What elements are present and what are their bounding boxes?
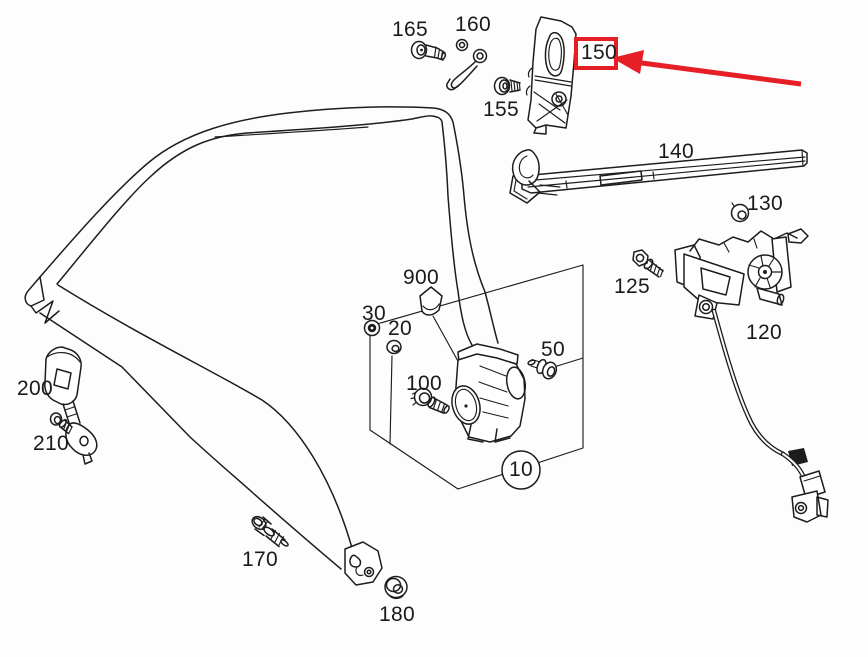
callout-200[interactable]: 200 [17,378,53,400]
parts-line-art [0,0,868,657]
callout-900[interactable]: 900 [403,267,439,289]
parts-diagram-canvas: 150 165 160 155 140 130 125 120 900 30 2… [0,0,868,657]
callout-20[interactable]: 20 [388,318,412,340]
bolt-125-drawing [633,250,663,277]
callout-130[interactable]: 130 [747,193,783,215]
callout-170[interactable]: 170 [242,549,278,571]
callout-30[interactable]: 30 [362,303,386,325]
belt-end-fitting-drawing [345,542,382,585]
highlight-box: 150 [574,37,618,70]
callout-120[interactable]: 120 [746,322,782,344]
retractor-10-drawing [448,344,528,442]
screw-155-drawing [495,78,521,95]
callout-165[interactable]: 165 [392,19,428,41]
callout-100[interactable]: 100 [406,373,442,395]
belt-tag-900-drawing [420,287,442,315]
callout-125[interactable]: 125 [614,276,650,298]
adjuster-120-drawing [675,229,828,522]
highlight-arrow [612,50,801,84]
callout-210[interactable]: 210 [33,433,69,455]
belt-webbing-drawing [25,107,498,569]
bracket-160-drawing [447,40,487,90]
pillar-bracket-150-drawing [526,17,576,134]
bolt-50-drawing [527,358,558,380]
callout-160[interactable]: 160 [455,14,491,36]
screw-165-drawing [412,42,447,61]
callout-180[interactable]: 180 [379,604,415,626]
grommet-180-drawing [385,577,407,599]
callout-150[interactable]: 150 [581,42,617,64]
callout-140[interactable]: 140 [658,141,694,163]
callout-155[interactable]: 155 [483,99,519,121]
callout-50[interactable]: 50 [541,339,565,361]
washer-20-drawing [387,341,401,354]
grommet-130-drawing [732,203,749,222]
callout-10[interactable]: 10 [499,459,543,481]
